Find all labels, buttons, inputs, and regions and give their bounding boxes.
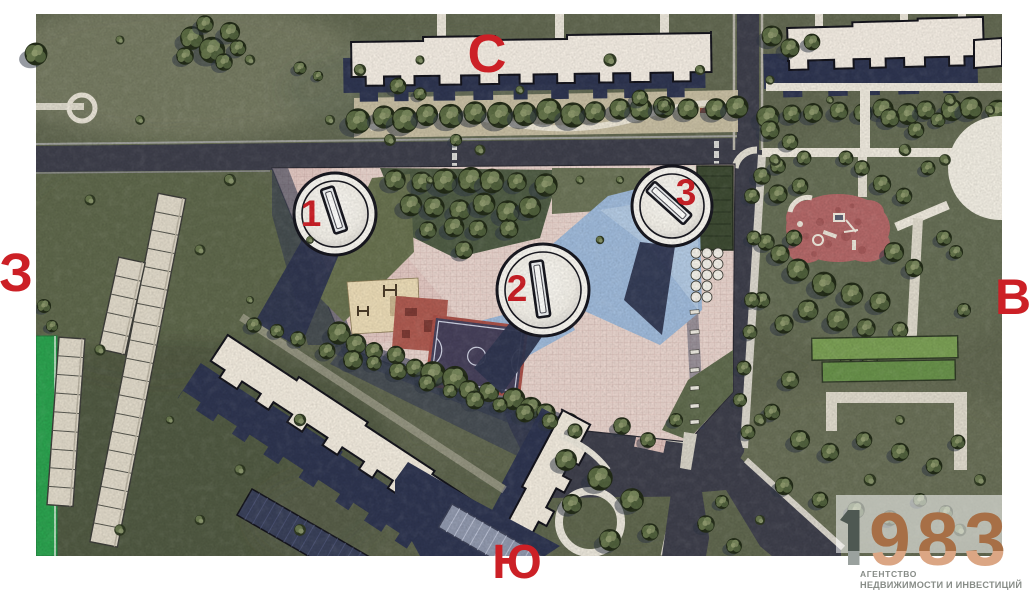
svg-text:С: С (468, 24, 507, 84)
svg-text:АГЕНТСТВО: АГЕНТСТВО (860, 569, 917, 579)
svg-text:Ю: Ю (492, 536, 542, 589)
svg-text:З: З (0, 243, 33, 303)
svg-text:НЕДВИЖИМОСТИ И ИНВЕСТИЦИЙ: НЕДВИЖИМОСТИ И ИНВЕСТИЦИЙ (860, 579, 1022, 590)
svg-text:В: В (995, 269, 1031, 325)
